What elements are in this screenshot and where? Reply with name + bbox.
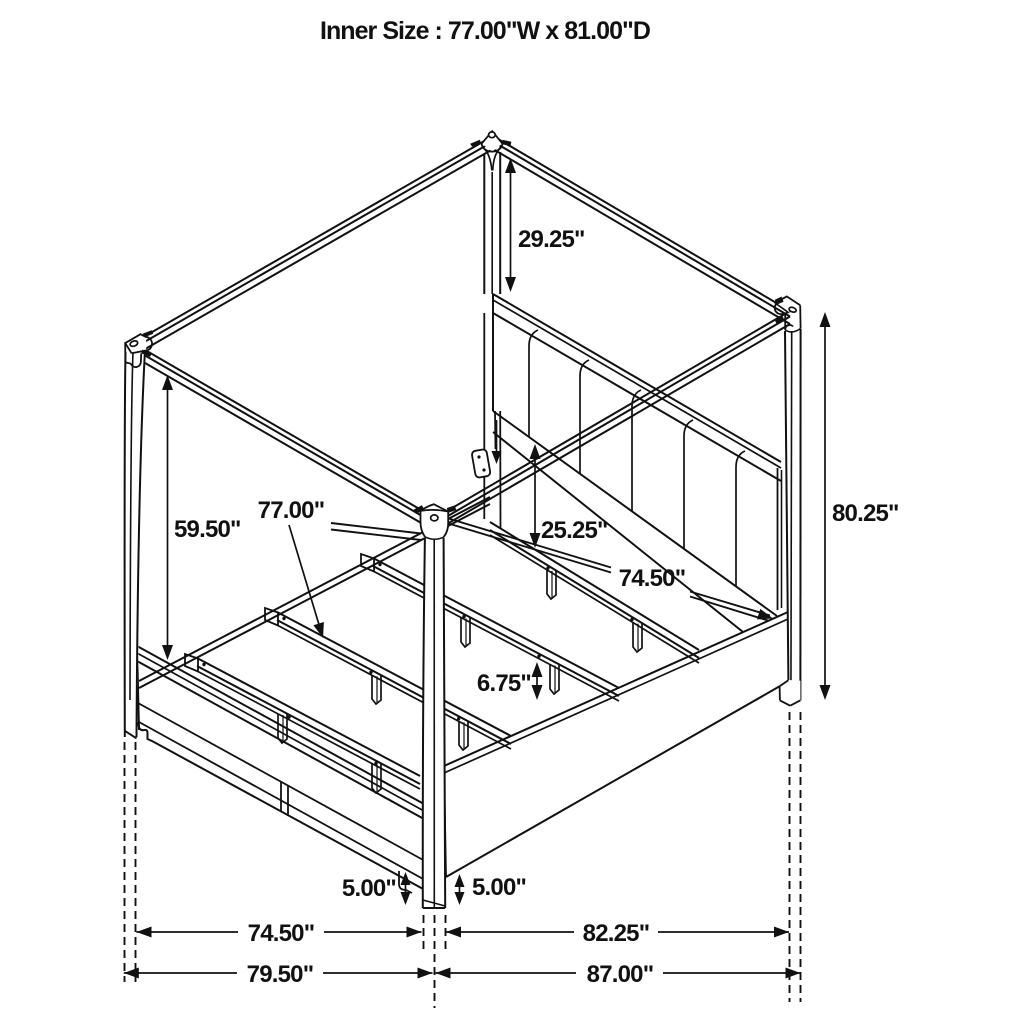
svg-text:25.25": 25.25" <box>541 517 608 544</box>
svg-text:5.00": 5.00" <box>472 874 526 901</box>
svg-text:5.00": 5.00" <box>342 875 396 902</box>
svg-text:82.25": 82.25" <box>583 920 650 947</box>
svg-text:87.00": 87.00" <box>587 961 654 988</box>
svg-text:59.50": 59.50" <box>174 516 241 543</box>
svg-text:29.25": 29.25" <box>518 226 585 253</box>
svg-text:74.50": 74.50" <box>248 920 315 947</box>
svg-text:80.25": 80.25" <box>832 500 899 527</box>
svg-text:77.00": 77.00" <box>258 497 325 524</box>
svg-text:74.50": 74.50" <box>619 565 686 592</box>
svg-text:79.50": 79.50" <box>247 961 314 988</box>
svg-text:6.75": 6.75" <box>477 670 531 697</box>
svg-text:Inner Size : 77.00"W x 81.00"D: Inner Size : 77.00"W x 81.00"D <box>320 17 650 45</box>
